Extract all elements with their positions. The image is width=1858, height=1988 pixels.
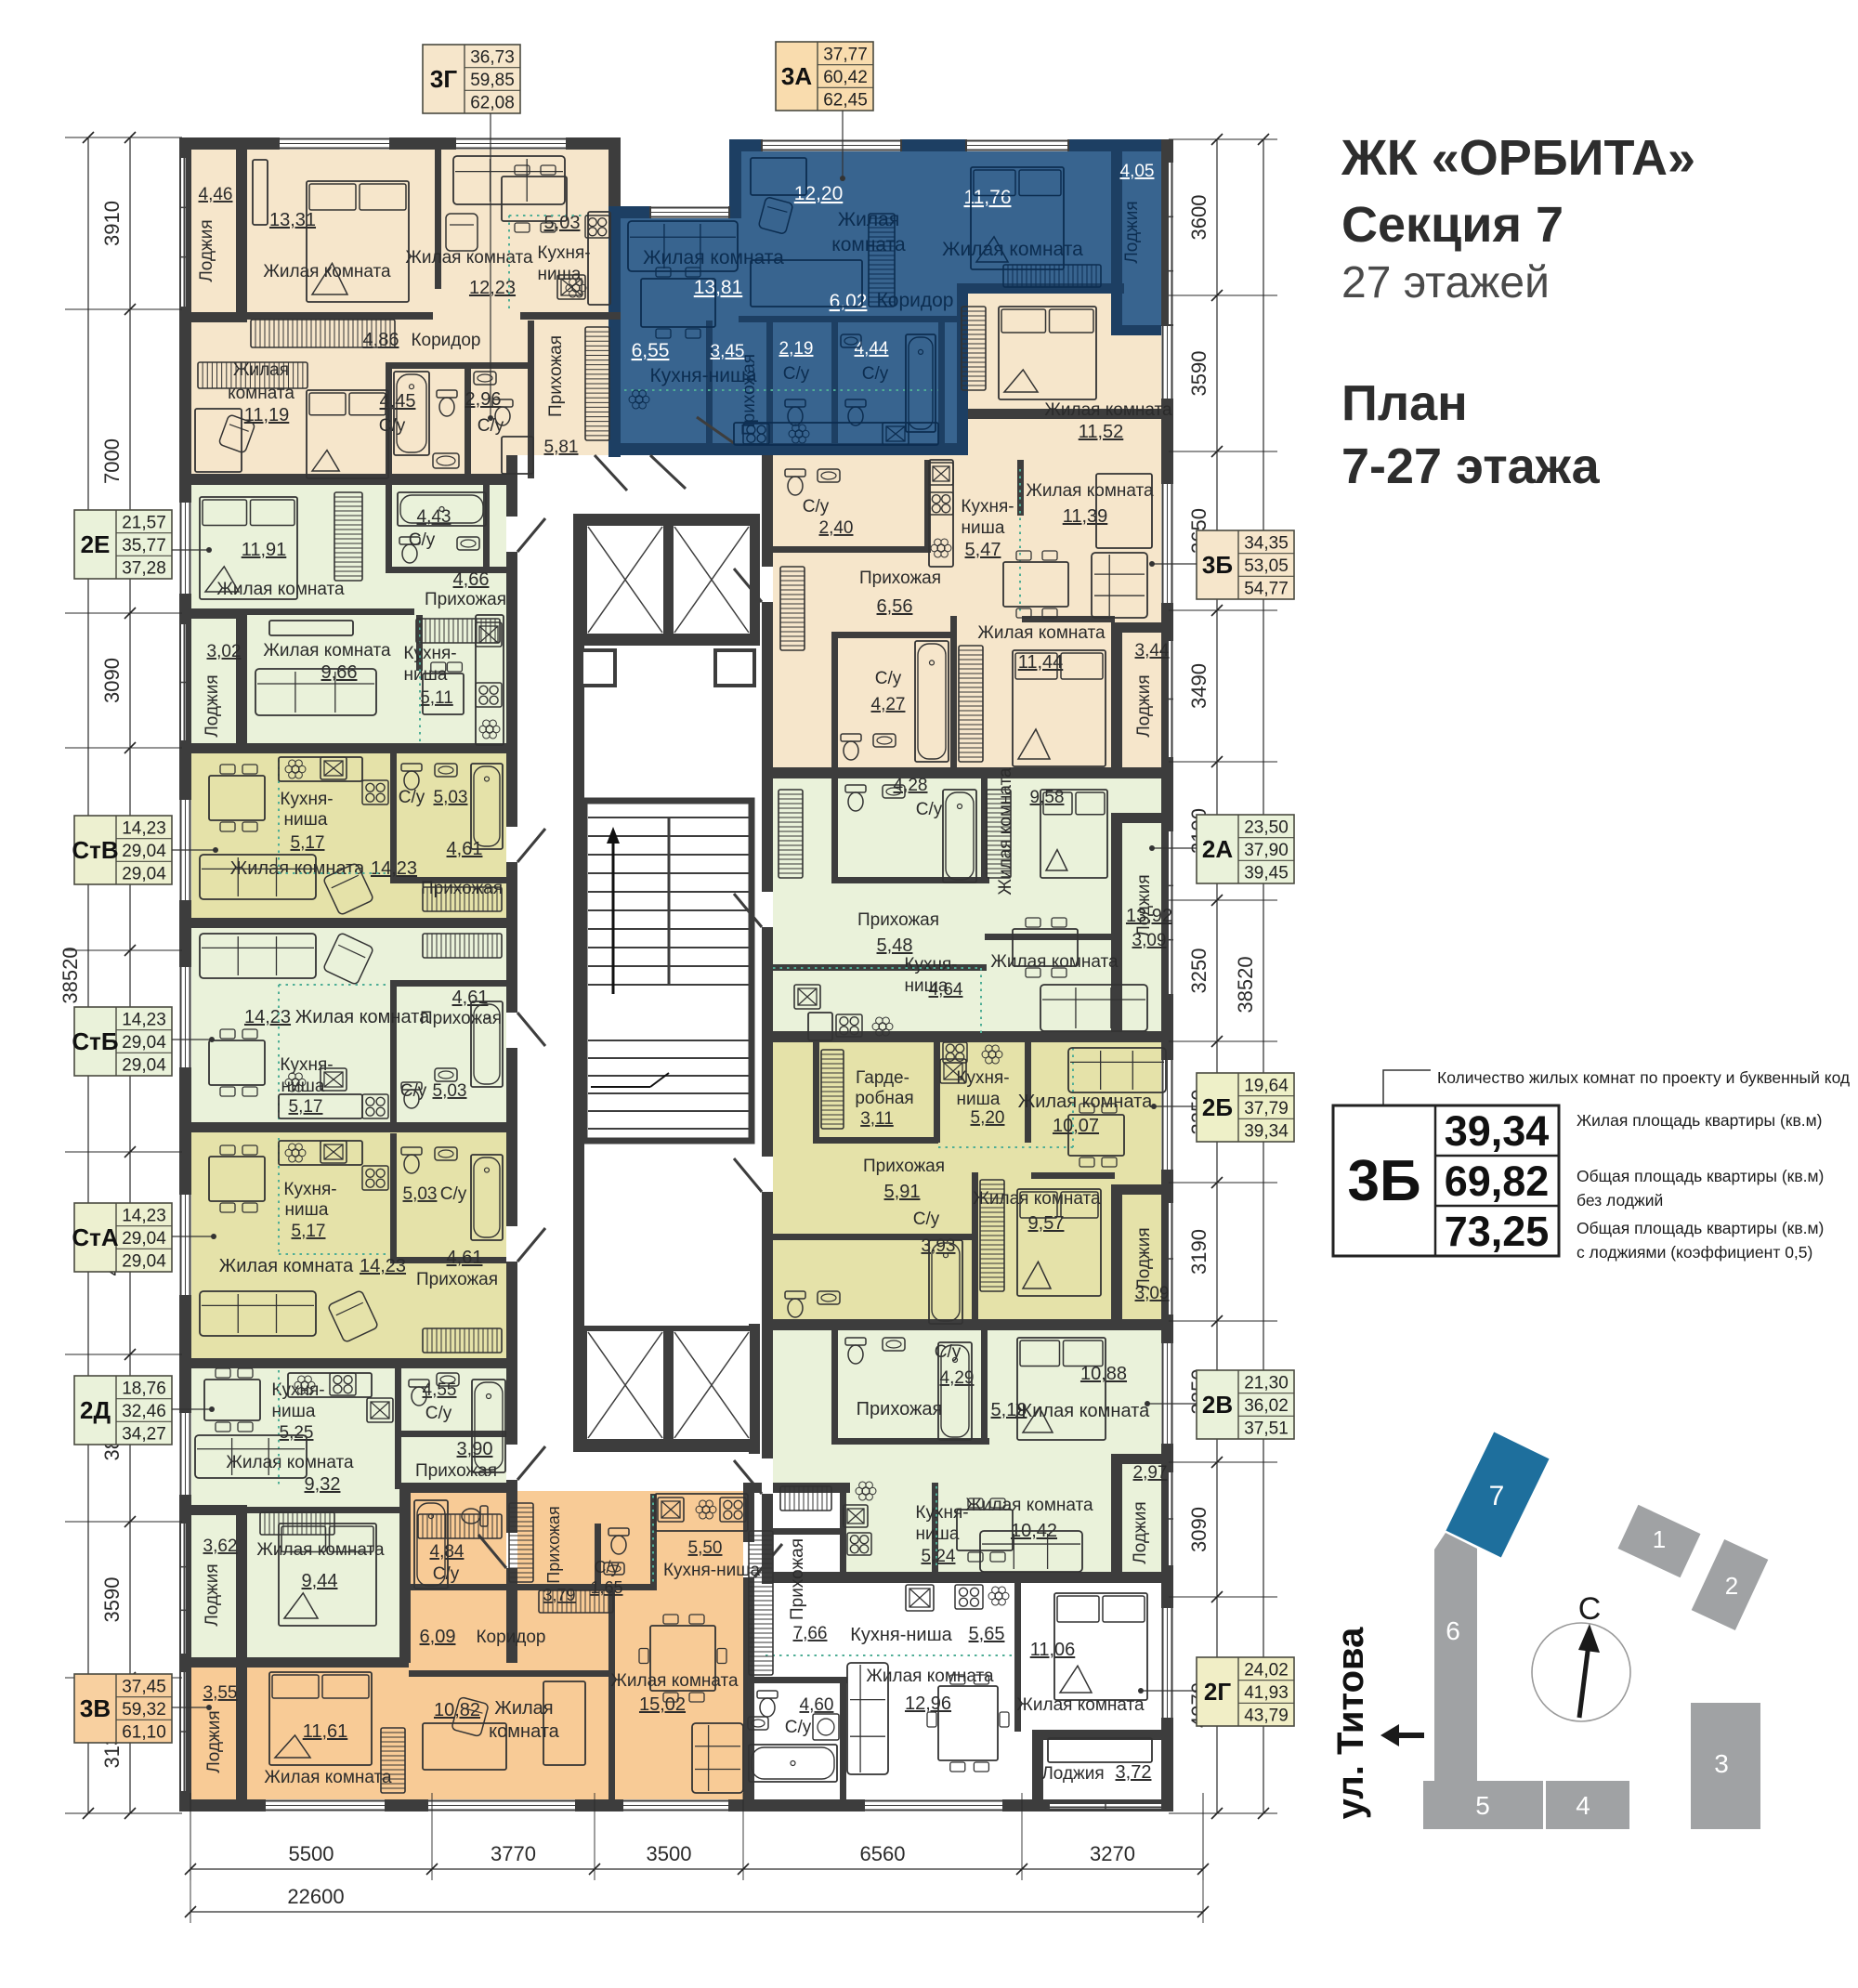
svg-text:Прихожая: Прихожая: [421, 879, 503, 898]
svg-text:Прихожая: Прихожая: [859, 569, 941, 588]
svg-text:Жилая комната: Жилая комната: [219, 1256, 354, 1276]
svg-text:37,90: 37,90: [1244, 841, 1289, 860]
svg-text:5500: 5500: [289, 1842, 334, 1865]
svg-text:робная: робная: [855, 1089, 913, 1108]
svg-text:Прихожая: Прихожая: [857, 910, 939, 930]
svg-text:4,60: 4,60: [800, 1695, 834, 1715]
svg-text:7000: 7000: [100, 438, 124, 484]
svg-text:3190: 3190: [1187, 1229, 1210, 1275]
svg-text:3590: 3590: [100, 1577, 124, 1623]
svg-text:3,55: 3,55: [203, 1683, 238, 1703]
svg-text:ниша: ниша: [916, 1524, 960, 1544]
svg-text:5,81: 5,81: [544, 438, 579, 457]
svg-text:Кухня-: Кухня-: [915, 1503, 968, 1523]
svg-text:Прихожая: Прихожая: [546, 335, 566, 417]
svg-text:Жилая комната: Жилая комната: [965, 1496, 1093, 1515]
svg-text:3910: 3910: [100, 201, 124, 246]
svg-text:37,45: 37,45: [122, 1677, 166, 1696]
svg-text:14,23: 14,23: [244, 1007, 291, 1027]
svg-text:38520: 38520: [59, 947, 82, 1003]
svg-text:комната: комната: [228, 384, 294, 403]
svg-text:37,79: 37,79: [1244, 1099, 1289, 1118]
svg-text:4: 4: [1576, 1791, 1590, 1820]
svg-text:Прихожая: Прихожая: [544, 1506, 563, 1583]
svg-text:Прихожая: Прихожая: [416, 1270, 498, 1289]
svg-text:С/у: С/у: [916, 800, 943, 819]
svg-text:5,03: 5,03: [403, 1184, 438, 1204]
svg-text:4,46: 4,46: [199, 185, 233, 204]
svg-text:23,50: 23,50: [1244, 817, 1289, 837]
svg-text:Лоджия: Лоджия: [1041, 1764, 1104, 1784]
svg-text:3490: 3490: [1187, 663, 1210, 709]
svg-text:С/у: С/у: [409, 530, 436, 550]
svg-text:С/у: С/у: [399, 788, 425, 807]
svg-text:Жилая комната: Жилая комната: [263, 641, 391, 660]
svg-text:3,09: 3,09: [1132, 931, 1167, 950]
svg-text:СтБ: СтБ: [72, 1027, 118, 1055]
svg-text:С/у: С/у: [785, 1718, 812, 1737]
svg-text:4,43: 4,43: [417, 507, 451, 527]
svg-text:5,11: 5,11: [420, 688, 453, 708]
svg-text:4,44: 4,44: [855, 339, 889, 359]
svg-text:29,04: 29,04: [122, 1229, 166, 1249]
svg-text:Кухня-: Кухня-: [961, 497, 1014, 517]
svg-text:Жилая комната: Жилая комната: [295, 1007, 430, 1027]
svg-text:3,44: 3,44: [1135, 641, 1170, 660]
svg-text:2А: 2А: [1202, 835, 1233, 863]
svg-text:3В: 3В: [80, 1694, 111, 1722]
svg-text:С/у: С/у: [433, 1564, 460, 1584]
svg-text:14,23: 14,23: [122, 818, 166, 838]
svg-text:7-27 этажа: 7-27 этажа: [1341, 438, 1601, 494]
svg-text:3250: 3250: [1187, 948, 1210, 994]
svg-text:3: 3: [1714, 1749, 1729, 1778]
svg-text:59,32: 59,32: [122, 1700, 166, 1720]
svg-text:ниша: ниша: [404, 665, 448, 685]
svg-text:2Б: 2Б: [1202, 1093, 1233, 1121]
svg-text:9,58: 9,58: [1030, 788, 1065, 807]
svg-text:Кухня-: Кухня-: [537, 243, 590, 263]
svg-text:Жилая площадь квартиры (кв.м): Жилая площадь квартиры (кв.м): [1577, 1111, 1822, 1130]
svg-text:14,23: 14,23: [360, 1256, 406, 1276]
svg-text:18,76: 18,76: [122, 1379, 166, 1398]
svg-text:Кухня-ниша: Кухня-ниша: [850, 1625, 952, 1645]
svg-text:19,64: 19,64: [1244, 1076, 1289, 1095]
svg-text:29,04: 29,04: [122, 842, 166, 861]
svg-text:С/у: С/у: [803, 497, 830, 517]
svg-text:29,04: 29,04: [122, 1056, 166, 1076]
svg-text:4,05: 4,05: [1120, 162, 1155, 181]
svg-text:2,97: 2,97: [1133, 1463, 1168, 1483]
svg-text:11,39: 11,39: [1063, 506, 1108, 527]
svg-text:3Б: 3Б: [1347, 1149, 1420, 1213]
svg-text:Жилая комната: Жилая комната: [226, 1453, 354, 1472]
svg-text:13,31: 13,31: [269, 210, 316, 230]
svg-text:2Г: 2Г: [1204, 1678, 1231, 1706]
svg-text:Прихожая: Прихожая: [425, 590, 506, 609]
svg-text:Общая площадь квартиры (кв.м): Общая площадь квартиры (кв.м): [1577, 1167, 1824, 1185]
svg-text:35,77: 35,77: [122, 536, 166, 556]
svg-text:9,57: 9,57: [1028, 1213, 1065, 1234]
svg-text:С/у: С/у: [913, 1210, 940, 1229]
svg-text:4,55: 4,55: [423, 1380, 457, 1400]
svg-text:54,77: 54,77: [1244, 580, 1289, 599]
svg-text:ЖК «ОРБИТА»: ЖК «ОРБИТА»: [1341, 130, 1695, 186]
svg-text:ул. Титова: ул. Титова: [1330, 1627, 1371, 1819]
svg-text:С/у: С/у: [875, 669, 902, 688]
svg-text:3,45: 3,45: [711, 342, 745, 361]
svg-text:без лоджий: без лоджий: [1577, 1191, 1663, 1210]
svg-text:37,51: 37,51: [1244, 1419, 1289, 1439]
svg-text:4,64: 4,64: [929, 980, 963, 1000]
svg-text:39,34: 39,34: [1244, 1122, 1289, 1142]
svg-text:11,91: 11,91: [242, 540, 287, 560]
svg-text:Лоджия: Лоджия: [1134, 1227, 1154, 1289]
svg-text:14,23: 14,23: [122, 1010, 166, 1029]
svg-text:5,91: 5,91: [884, 1182, 921, 1202]
svg-text:24,02: 24,02: [1244, 1660, 1289, 1680]
svg-text:3500: 3500: [647, 1842, 692, 1865]
svg-text:59,85: 59,85: [470, 71, 515, 90]
svg-text:39,34: 39,34: [1445, 1107, 1550, 1155]
svg-text:Жилая комната: Жилая комната: [256, 1540, 385, 1560]
svg-text:22600: 22600: [287, 1885, 344, 1908]
svg-text:9,32: 9,32: [305, 1474, 341, 1495]
svg-text:Жилая комната: Жилая комната: [264, 1768, 392, 1787]
svg-text:37,77: 37,77: [823, 45, 868, 64]
svg-text:5,19: 5,19: [991, 1400, 1027, 1420]
svg-text:с лоджиями (коэффициент 0,5): с лоджиями (коэффициент 0,5): [1577, 1243, 1812, 1262]
svg-text:5,20: 5,20: [971, 1108, 1005, 1128]
svg-text:29,04: 29,04: [122, 865, 166, 884]
svg-text:ниша: ниша: [962, 518, 1005, 538]
svg-text:21,30: 21,30: [1244, 1373, 1289, 1393]
svg-text:6560: 6560: [860, 1842, 906, 1865]
svg-text:3600: 3600: [1187, 195, 1210, 241]
svg-text:5,17: 5,17: [292, 1222, 326, 1241]
svg-text:2,40: 2,40: [819, 518, 854, 538]
svg-text:73,25: 73,25: [1445, 1208, 1550, 1255]
svg-text:3270: 3270: [1090, 1842, 1135, 1865]
svg-text:2: 2: [1725, 1572, 1738, 1600]
svg-text:ниша: ниша: [957, 1090, 1001, 1109]
svg-text:43,79: 43,79: [1244, 1707, 1289, 1726]
svg-text:6: 6: [1446, 1616, 1460, 1645]
svg-text:С/у: С/у: [440, 1184, 467, 1204]
svg-text:62,45: 62,45: [823, 91, 868, 111]
svg-text:ниша: ниша: [281, 1077, 325, 1096]
svg-text:13,92: 13,92: [1126, 906, 1172, 926]
svg-text:5,24: 5,24: [922, 1547, 956, 1566]
svg-text:5,47: 5,47: [965, 540, 1001, 560]
svg-text:21,57: 21,57: [122, 513, 166, 532]
svg-text:6,55: 6,55: [632, 340, 670, 361]
svg-text:3А: 3А: [781, 62, 812, 90]
svg-text:3Г: 3Г: [430, 65, 457, 93]
svg-text:2Д: 2Д: [80, 1396, 111, 1424]
svg-text:4,27: 4,27: [871, 695, 906, 714]
svg-text:12,23: 12,23: [469, 278, 516, 298]
svg-text:11,61: 11,61: [303, 1721, 348, 1742]
svg-text:СтА: СтА: [72, 1223, 119, 1251]
svg-text:Кухня-: Кухня-: [280, 790, 333, 809]
svg-text:10,07: 10,07: [1053, 1116, 1099, 1136]
svg-text:С/у: С/у: [862, 364, 889, 384]
svg-text:Лоджия: Лоджия: [203, 674, 222, 737]
svg-text:3,09: 3,09: [1135, 1284, 1170, 1303]
svg-text:Лоджия: Лоджия: [197, 219, 216, 281]
svg-text:Жилая: Жилая: [233, 360, 289, 380]
svg-text:Жилая комната: Жилая комната: [1015, 1401, 1150, 1421]
svg-text:3Б: 3Б: [1202, 551, 1233, 579]
svg-text:34,27: 34,27: [122, 1425, 166, 1445]
svg-text:14,23: 14,23: [371, 858, 417, 879]
svg-text:53,05: 53,05: [1244, 556, 1289, 576]
svg-text:План: План: [1341, 375, 1468, 431]
svg-text:3590: 3590: [1187, 351, 1210, 397]
svg-text:Кухня-: Кухня-: [956, 1068, 1009, 1088]
svg-text:Кухня-: Кухня-: [904, 955, 957, 974]
svg-text:Жилая комната: Жилая комната: [1018, 1092, 1153, 1112]
svg-text:Прихожая: Прихожая: [788, 1538, 807, 1620]
svg-text:3090: 3090: [1187, 1507, 1210, 1552]
svg-text:ниша: ниша: [272, 1402, 316, 1421]
svg-text:3,72: 3,72: [1116, 1762, 1152, 1783]
svg-text:Кухня-: Кухня-: [283, 1180, 336, 1199]
svg-text:11,06: 11,06: [1030, 1640, 1076, 1660]
svg-text:Прихожая: Прихожая: [863, 1157, 945, 1176]
svg-text:ниша: ниша: [284, 810, 328, 830]
svg-text:Общая площадь квартиры (кв.м): Общая площадь квартиры (кв.м): [1577, 1219, 1824, 1237]
svg-text:Жилая комната: Жилая комната: [977, 623, 1106, 643]
svg-text:69,82: 69,82: [1445, 1157, 1550, 1205]
svg-text:С/у: С/у: [595, 1558, 620, 1576]
svg-text:5,65: 5,65: [969, 1624, 1005, 1644]
svg-text:Лоджия: Лоджия: [204, 1710, 224, 1772]
svg-text:5,03: 5,03: [434, 788, 468, 807]
svg-text:Коридор: Коридор: [476, 1628, 545, 1647]
svg-text:13,81: 13,81: [694, 277, 743, 298]
svg-text:5,25: 5,25: [280, 1423, 314, 1443]
svg-text:14,23: 14,23: [122, 1206, 166, 1225]
svg-text:Прихожая: Прихожая: [420, 1009, 502, 1028]
svg-text:Жилая комната: Жилая комната: [866, 1667, 994, 1686]
svg-text:11,44: 11,44: [1018, 652, 1064, 673]
svg-text:Количество жилых комнат по про: Количество жилых комнат по проекту и бук…: [1437, 1068, 1850, 1087]
svg-text:7: 7: [1489, 1481, 1505, 1511]
svg-text:Лоджия: Лоджия: [1134, 674, 1154, 737]
svg-text:Секция 7: Секция 7: [1341, 197, 1564, 253]
svg-text:Лоджия: Лоджия: [1131, 1501, 1150, 1563]
svg-text:Жилая комната: Жилая комната: [610, 1671, 739, 1691]
svg-text:Жилая комната: Жилая комната: [1044, 400, 1172, 420]
svg-text:Кухня-: Кухня-: [403, 644, 456, 663]
svg-text:С/у: С/у: [783, 364, 810, 384]
svg-text:5,03: 5,03: [433, 1081, 467, 1101]
svg-text:29,04: 29,04: [122, 1252, 166, 1272]
svg-text:С/у: С/у: [425, 1404, 452, 1423]
svg-text:39,45: 39,45: [1244, 864, 1289, 883]
svg-text:36,73: 36,73: [470, 47, 515, 67]
svg-text:С/у: С/у: [379, 416, 406, 436]
svg-text:12,96: 12,96: [905, 1694, 951, 1714]
svg-text:2,19: 2,19: [779, 339, 814, 359]
svg-text:9,66: 9,66: [321, 662, 358, 683]
svg-text:2В: 2В: [1202, 1391, 1233, 1419]
svg-text:5,48: 5,48: [877, 935, 913, 956]
svg-text:комната: комната: [489, 1721, 560, 1742]
svg-text:4,66: 4,66: [453, 569, 490, 590]
svg-text:ниша: ниша: [285, 1200, 329, 1220]
svg-text:10,88: 10,88: [1080, 1364, 1127, 1384]
svg-text:Кухня-ниша: Кухня-ниша: [663, 1561, 761, 1580]
svg-text:12,20: 12,20: [794, 183, 844, 204]
svg-text:Коридор: Коридор: [411, 331, 480, 350]
svg-text:3,11: 3,11: [860, 1109, 894, 1129]
svg-text:60,42: 60,42: [823, 68, 868, 87]
svg-text:1: 1: [1653, 1525, 1666, 1553]
svg-text:С: С: [1578, 1591, 1602, 1627]
svg-text:Жилая: Жилая: [494, 1698, 553, 1719]
svg-text:62,08: 62,08: [470, 94, 515, 113]
svg-text:37,28: 37,28: [122, 559, 166, 579]
svg-text:Жилая комната: Жилая комната: [1026, 481, 1154, 501]
svg-text:36,02: 36,02: [1244, 1396, 1289, 1416]
svg-text:5,50: 5,50: [688, 1538, 723, 1558]
svg-text:34,35: 34,35: [1244, 533, 1289, 553]
svg-text:3770: 3770: [491, 1842, 536, 1865]
svg-text:Жилая комната: Жилая комната: [942, 239, 1083, 260]
svg-text:Жилая комната: Жилая комната: [990, 952, 1119, 972]
svg-text:27 этажей: 27 этажей: [1341, 258, 1550, 307]
svg-text:Прихожая: Прихожая: [415, 1461, 497, 1481]
svg-text:3090: 3090: [100, 658, 124, 703]
svg-text:61,10: 61,10: [122, 1723, 166, 1743]
svg-text:6,09: 6,09: [420, 1627, 456, 1647]
svg-text:Лоджия: Лоджия: [203, 1563, 222, 1626]
svg-text:Лоджия: Лоджия: [1122, 201, 1142, 263]
svg-text:СтВ: СтВ: [72, 836, 118, 864]
svg-text:Гарде-: Гарде-: [856, 1068, 909, 1088]
svg-text:5,17: 5,17: [291, 833, 325, 853]
svg-text:4,61: 4,61: [447, 1248, 483, 1268]
svg-text:Жилая комната: Жилая комната: [1016, 1695, 1145, 1715]
svg-text:6,56: 6,56: [877, 596, 913, 617]
svg-text:5: 5: [1475, 1791, 1490, 1820]
svg-text:Жилая комната: Жилая комната: [216, 580, 345, 599]
svg-text:7,66: 7,66: [793, 1624, 828, 1643]
svg-text:1,65: 1,65: [590, 1578, 622, 1597]
svg-text:29,04: 29,04: [122, 1033, 166, 1053]
svg-text:Прихожая: Прихожая: [857, 1399, 943, 1419]
svg-text:3,02: 3,02: [207, 642, 242, 661]
svg-text:5,17: 5,17: [289, 1097, 323, 1117]
svg-text:11,52: 11,52: [1079, 422, 1124, 442]
svg-text:41,93: 41,93: [1244, 1683, 1289, 1703]
svg-text:3,62: 3,62: [203, 1537, 238, 1556]
svg-text:32,46: 32,46: [122, 1402, 166, 1421]
svg-text:9,44: 9,44: [302, 1571, 338, 1591]
svg-text:2Е: 2Е: [81, 530, 111, 558]
svg-text:38520: 38520: [1234, 956, 1257, 1013]
